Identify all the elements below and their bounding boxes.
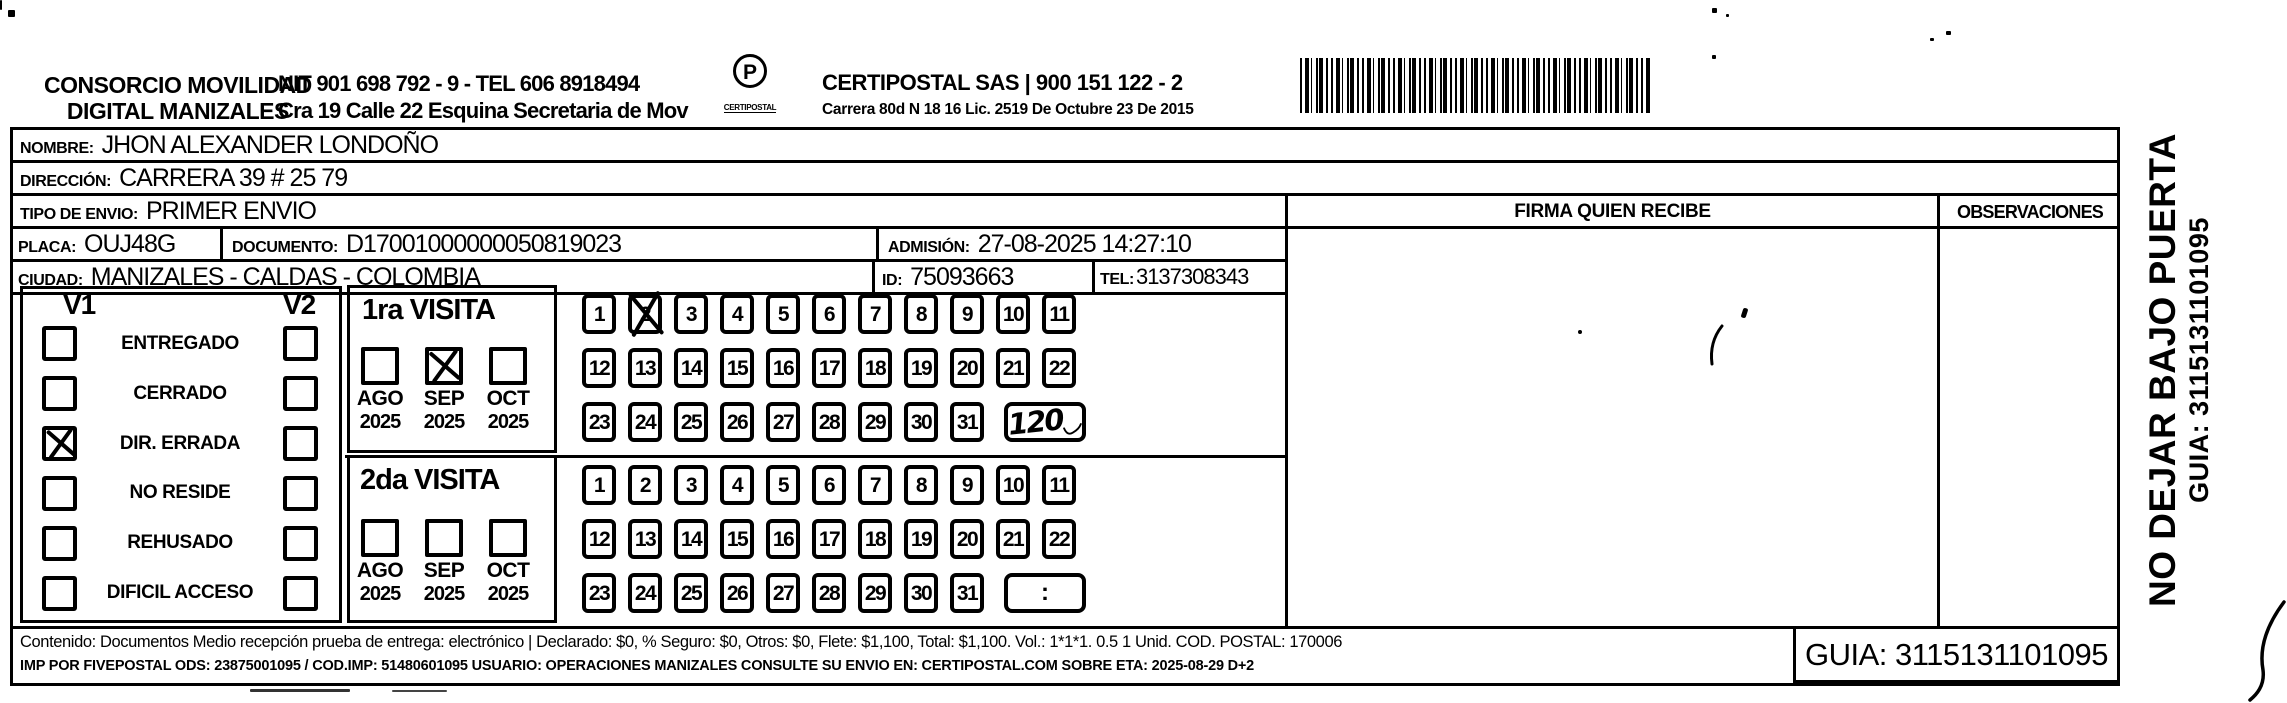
grid-line xyxy=(1285,193,1288,629)
day-number: 22 xyxy=(1049,358,1069,379)
grid-line xyxy=(872,259,875,295)
day-29: 29 xyxy=(858,573,892,613)
day-10: 10 xyxy=(996,465,1030,505)
scan-artifact xyxy=(0,0,2,10)
status-panel: V1 V2 ENTREGADOCERRADODIR. ERRADANO RESI… xyxy=(20,286,342,623)
day-4: 4 xyxy=(720,294,754,334)
sender-nit: NIT 901 698 792 - 9 - TEL 606 8918494 xyxy=(278,70,688,97)
day-28: 28 xyxy=(812,573,846,613)
day-number: 25 xyxy=(681,412,701,433)
day-number: 6 xyxy=(824,475,834,496)
time-colon: : xyxy=(1041,579,1049,607)
day-number: 27 xyxy=(773,583,793,604)
field-nombre: NOMBRE: JHON ALEXANDER LONDOÑO xyxy=(20,133,438,158)
visita1-months: AGO2025SEP2025OCT2025 xyxy=(352,347,536,432)
day-19: 19 xyxy=(904,348,938,388)
day-number: 10 xyxy=(1003,475,1023,496)
day-24: 24 xyxy=(628,573,662,613)
tail-box: : xyxy=(1004,573,1086,613)
documento-value: D17001000000050819023 xyxy=(346,232,621,257)
day-7: 7 xyxy=(858,294,892,334)
month-option-oct: OCT2025 xyxy=(480,347,536,432)
day-number: 3 xyxy=(686,475,696,496)
day-number: 7 xyxy=(870,304,880,325)
day-3: 3 xyxy=(674,465,708,505)
day-number: 17 xyxy=(819,529,839,550)
day-number: 15 xyxy=(727,358,747,379)
nombre-label: NOMBRE: xyxy=(20,140,94,158)
day-number: 20 xyxy=(957,529,977,550)
sender-company-name: CONSORCIO MOVILIDAD DIGITAL MANIZALES xyxy=(44,72,312,124)
month-year: 2025 xyxy=(488,412,529,432)
scan-artifact xyxy=(250,689,350,692)
grid-line xyxy=(220,226,223,262)
day-number: 16 xyxy=(773,529,793,550)
day-26: 26 xyxy=(720,573,754,613)
v2-checkbox-5 xyxy=(283,576,318,611)
day-number: 18 xyxy=(865,358,885,379)
day-number: 28 xyxy=(819,583,839,604)
day-number: 14 xyxy=(681,358,701,379)
day-number: 5 xyxy=(778,304,788,325)
day-number: 18 xyxy=(865,529,885,550)
month-checkbox xyxy=(425,519,463,557)
day-number: 12 xyxy=(589,358,609,379)
tipo-envio-label: TIPO DE ENVIO: xyxy=(20,206,138,224)
tel-value: 3137308343 xyxy=(1136,266,1248,288)
day-31: 31 xyxy=(950,573,984,613)
grid-line xyxy=(10,193,2120,196)
day-number: 20 xyxy=(957,358,977,379)
day-22: 22 xyxy=(1042,519,1076,559)
v2-checkbox-1 xyxy=(283,376,318,411)
day-23: 23 xyxy=(582,573,616,613)
day-7: 7 xyxy=(858,465,892,505)
v1-checkbox-1 xyxy=(42,376,77,411)
day-20: 20 xyxy=(950,519,984,559)
month-label: AGO xyxy=(357,388,403,409)
day-number: 19 xyxy=(911,529,931,550)
admision-label: ADMISIÓN: xyxy=(888,239,970,257)
day-number: 9 xyxy=(962,475,972,496)
day-number: 11 xyxy=(1049,304,1068,325)
scan-artifact xyxy=(392,690,447,692)
status-label: REHUSADO xyxy=(77,532,283,554)
status-row: REHUSADO xyxy=(23,518,339,568)
day-number: 5 xyxy=(778,475,788,496)
v1-checkbox-3 xyxy=(42,476,77,511)
day-number: 9 xyxy=(962,304,972,325)
day-number: 21 xyxy=(1003,529,1023,550)
sender-nit-block: NIT 901 698 792 - 9 - TEL 606 8918494 Cr… xyxy=(278,70,688,124)
day-13: 13 xyxy=(628,519,662,559)
day-23: 23 xyxy=(582,402,616,442)
day-1: 1 xyxy=(582,294,616,334)
day-1: 1 xyxy=(582,465,616,505)
day-row: 1213141516171819202122 xyxy=(582,348,1086,388)
day-11: 11 xyxy=(1042,294,1076,334)
day-number: 11 xyxy=(1049,475,1068,496)
month-checkbox xyxy=(489,519,527,557)
month-year: 2025 xyxy=(488,584,529,604)
field-tel: TEL: 3137308343 xyxy=(1100,266,1248,289)
admision-value: 27-08-2025 14:27:10 xyxy=(978,232,1191,257)
status-row: NO RESIDE xyxy=(23,468,339,518)
day-number: 30 xyxy=(911,412,931,433)
day-31: 31 xyxy=(950,402,984,442)
day-28: 28 xyxy=(812,402,846,442)
day-10: 10 xyxy=(996,294,1030,334)
day-8: 8 xyxy=(904,294,938,334)
day-number: 17 xyxy=(819,358,839,379)
day-12: 12 xyxy=(582,519,616,559)
grid-line xyxy=(10,160,2120,163)
day-25: 25 xyxy=(674,402,708,442)
day-number: 29 xyxy=(865,412,885,433)
scan-artifact xyxy=(8,10,15,17)
day-row: 1234567891011 xyxy=(582,465,1086,505)
field-direccion: DIRECCIÓN: CARRERA 39 # 25 79 xyxy=(20,166,347,191)
day-9: 9 xyxy=(950,294,984,334)
field-tipo-envio: TIPO DE ENVIO: PRIMER ENVIO xyxy=(20,199,316,224)
day-14: 14 xyxy=(674,348,708,388)
day-number: 24 xyxy=(635,412,655,433)
day-30: 30 xyxy=(904,573,938,613)
day-14: 14 xyxy=(674,519,708,559)
nombre-value: JHON ALEXANDER LONDOÑO xyxy=(102,133,438,158)
status-row: DIR. ERRADA xyxy=(23,419,339,469)
v2-checkbox-3 xyxy=(283,476,318,511)
day-number: 8 xyxy=(916,475,926,496)
visita1-day-grid: 1234567891011121314151617181920212223242… xyxy=(582,294,1086,456)
pen-mark xyxy=(1700,322,1730,368)
month-option-oct: OCT2025 xyxy=(480,519,536,604)
day-21: 21 xyxy=(996,519,1030,559)
observaciones-column-header: OBSERVACIONES xyxy=(1940,202,2120,223)
scan-artifact xyxy=(1726,14,1729,17)
month-label: OCT xyxy=(487,388,530,409)
month-option-ago: AGO2025 xyxy=(352,347,408,432)
handwritten-x-mark xyxy=(44,428,75,459)
day-27: 27 xyxy=(766,402,800,442)
day-row: 232425262728293031: xyxy=(582,573,1086,613)
visita2-title: 2da VISITA xyxy=(360,464,499,497)
day-29: 29 xyxy=(858,402,892,442)
v2-checkbox-0 xyxy=(283,326,318,361)
day-2: 2 xyxy=(628,294,662,334)
day-27: 27 xyxy=(766,573,800,613)
day-number: 29 xyxy=(865,583,885,604)
day-number: 16 xyxy=(773,358,793,379)
visita1-title: 1ra VISITA xyxy=(362,294,495,327)
field-admision: ADMISIÓN: 27-08-2025 14:27:10 xyxy=(888,232,1191,257)
day-6: 6 xyxy=(812,465,846,505)
certipostal-logo: P CERTIPOSTAL xyxy=(722,52,778,115)
day-number: 12 xyxy=(589,529,609,550)
visita2-day-grid: 1234567891011121314151617181920212223242… xyxy=(582,465,1086,627)
day-number: 31 xyxy=(957,412,977,433)
v1-checkbox-2 xyxy=(42,426,77,461)
day-number: 6 xyxy=(824,304,834,325)
day-number: 30 xyxy=(911,583,931,604)
day-number: 23 xyxy=(589,412,609,433)
imp-text: IMP POR FIVEPOSTAL ODS: 23875001095 / CO… xyxy=(20,658,1254,674)
month-year: 2025 xyxy=(424,412,465,432)
scan-artifact xyxy=(1712,55,1716,59)
day-number: 28 xyxy=(819,412,839,433)
day-11: 11 xyxy=(1042,465,1076,505)
placa-value: OUJ48G xyxy=(84,232,175,257)
day-19: 19 xyxy=(904,519,938,559)
field-placa: PLACA: OUJ48G xyxy=(18,232,175,257)
documento-label: DOCUMENTO: xyxy=(232,239,338,257)
day-number: 27 xyxy=(773,412,793,433)
id-value: 75093663 xyxy=(910,265,1013,290)
day-12: 12 xyxy=(582,348,616,388)
month-year: 2025 xyxy=(424,584,465,604)
certipostal-address: Carrera 80d N 18 16 Lic. 2519 De Octubre… xyxy=(822,101,1194,119)
day-number: 22 xyxy=(1049,529,1069,550)
day-number: 10 xyxy=(1003,304,1023,325)
grid-line xyxy=(876,226,879,262)
v2-checkbox-2 xyxy=(283,426,318,461)
firma-column-header: FIRMA QUIEN RECIBE xyxy=(1288,201,1937,223)
v1-checkbox-5 xyxy=(42,576,77,611)
day-30: 30 xyxy=(904,402,938,442)
guia-number-box: GUIA: 3115131101095 xyxy=(1793,626,2120,683)
month-label: AGO xyxy=(357,560,403,581)
day-number: 3 xyxy=(686,304,696,325)
field-id: ID: 75093663 xyxy=(882,265,1013,290)
v2-checkbox-4 xyxy=(283,526,318,561)
day-number: 13 xyxy=(635,358,655,379)
month-checkbox xyxy=(361,519,399,557)
handwritten-x-mark xyxy=(427,349,461,383)
month-label: OCT xyxy=(487,560,530,581)
tel-label: TEL: xyxy=(1100,271,1134,289)
grid-line xyxy=(1092,259,1095,295)
month-year: 2025 xyxy=(360,412,401,432)
day-24: 24 xyxy=(628,402,662,442)
day-row: 232425262728293031120 xyxy=(582,402,1086,442)
day-number: 31 xyxy=(957,583,977,604)
day-26: 26 xyxy=(720,402,754,442)
day-21: 21 xyxy=(996,348,1030,388)
day-4: 4 xyxy=(720,465,754,505)
contenido-text: Contenido: Documentos Medio recepción pr… xyxy=(20,633,1342,652)
day-number: 14 xyxy=(681,529,701,550)
day-25: 25 xyxy=(674,573,708,613)
status-label: DIFICIL ACCESO xyxy=(77,582,283,604)
status-row: CERRADO xyxy=(23,369,339,419)
status-label: ENTREGADO xyxy=(77,333,283,355)
grid-line xyxy=(10,226,2120,229)
tail-box: 120 xyxy=(1004,402,1086,442)
month-year: 2025 xyxy=(360,584,401,604)
scan-artifact xyxy=(1930,38,1934,41)
v1-checkbox-0 xyxy=(42,326,77,361)
field-documento: DOCUMENTO: D17001000000050819023 xyxy=(232,232,621,257)
day-5: 5 xyxy=(766,294,800,334)
day-22: 22 xyxy=(1042,348,1076,388)
status-row: ENTREGADO xyxy=(23,319,339,369)
status-label: NO RESIDE xyxy=(77,482,283,504)
v1-checkbox-4 xyxy=(42,526,77,561)
day-number: 4 xyxy=(732,304,742,325)
scan-artifact xyxy=(1946,31,1951,35)
day-17: 17 xyxy=(812,348,846,388)
day-20: 20 xyxy=(950,348,984,388)
scanned-delivery-form: CONSORCIO MOVILIDAD DIGITAL MANIZALES NI… xyxy=(0,0,2287,703)
day-3: 3 xyxy=(674,294,708,334)
certipostal-logo-icon: P xyxy=(728,52,772,92)
day-16: 16 xyxy=(766,348,800,388)
status-rows: ENTREGADOCERRADODIR. ERRADANO RESIDEREHU… xyxy=(23,319,339,618)
sender-company-line1: CONSORCIO MOVILIDAD xyxy=(44,72,312,98)
day-5: 5 xyxy=(766,465,800,505)
day-15: 15 xyxy=(720,519,754,559)
day-number: 23 xyxy=(589,583,609,604)
tipo-envio-value: PRIMER ENVIO xyxy=(146,199,316,224)
scan-artifact xyxy=(1712,8,1717,13)
day-16: 16 xyxy=(766,519,800,559)
day-number: 24 xyxy=(635,583,655,604)
month-option-sep: SEP2025 xyxy=(416,347,472,432)
day-18: 18 xyxy=(858,519,892,559)
status-row: DIFICIL ACCESO xyxy=(23,568,339,618)
direccion-value: CARRERA 39 # 25 79 xyxy=(119,166,347,191)
day-number: 13 xyxy=(635,529,655,550)
grid-line xyxy=(1937,193,1940,629)
month-checkbox xyxy=(361,347,399,385)
month-option-sep: SEP2025 xyxy=(416,519,472,604)
day-2: 2 xyxy=(628,465,662,505)
day-number: 15 xyxy=(727,529,747,550)
day-number: 4 xyxy=(732,475,742,496)
direccion-label: DIRECCIÓN: xyxy=(20,173,111,191)
handwritten-swoosh xyxy=(1063,417,1082,443)
side-warning-text: NO DEJAR BAJO PUERTA xyxy=(2142,115,2184,625)
day-15: 15 xyxy=(720,348,754,388)
sender-address: Cra 19 Calle 22 Esquina Secretaria de Mo… xyxy=(278,97,688,124)
barcode xyxy=(1300,58,1652,113)
day-number: 2 xyxy=(640,475,650,496)
status-label: CERRADO xyxy=(77,383,283,405)
day-number: 26 xyxy=(727,583,747,604)
day-number: 7 xyxy=(870,475,880,496)
pen-mark xyxy=(2246,598,2287,703)
month-checkbox xyxy=(489,347,527,385)
day-17: 17 xyxy=(812,519,846,559)
v1-column-header: V1 xyxy=(63,289,95,321)
status-label: DIR. ERRADA xyxy=(77,433,283,455)
month-label: SEP xyxy=(424,560,465,581)
handwritten-x-mark xyxy=(625,291,665,337)
visita2-months: AGO2025SEP2025OCT2025 xyxy=(352,519,536,604)
day-8: 8 xyxy=(904,465,938,505)
day-row: 1213141516171819202122 xyxy=(582,519,1086,559)
day-number: 1 xyxy=(594,304,604,325)
certipostal-header: CERTIPOSTAL SAS | 900 151 122 - 2 Carrer… xyxy=(822,70,1194,119)
day-number: 8 xyxy=(916,304,926,325)
day-row: 1234567891011 xyxy=(582,294,1086,334)
month-option-ago: AGO2025 xyxy=(352,519,408,604)
day-6: 6 xyxy=(812,294,846,334)
month-checkbox xyxy=(425,347,463,385)
day-number: 19 xyxy=(911,358,931,379)
certipostal-name: CERTIPOSTAL SAS | 900 151 122 - 2 xyxy=(822,70,1194,96)
grid-line xyxy=(10,259,1288,262)
sender-company-line2: DIGITAL MANIZALES xyxy=(44,98,312,124)
side-guia-text: GUIA: 3115131101095 xyxy=(2184,204,2215,516)
day-13: 13 xyxy=(628,348,662,388)
handwritten-note: 120 xyxy=(1006,402,1064,442)
day-number: 1 xyxy=(594,475,604,496)
day-number: 26 xyxy=(727,412,747,433)
day-number: 25 xyxy=(681,583,701,604)
placa-label: PLACA: xyxy=(18,239,76,257)
month-label: SEP xyxy=(424,388,465,409)
day-9: 9 xyxy=(950,465,984,505)
id-label: ID: xyxy=(882,272,902,290)
day-18: 18 xyxy=(858,348,892,388)
v2-column-header: V2 xyxy=(283,289,315,321)
logo-caption: CERTIPOSTAL xyxy=(724,103,777,113)
day-number: 21 xyxy=(1003,358,1023,379)
svg-text:P: P xyxy=(743,61,757,84)
